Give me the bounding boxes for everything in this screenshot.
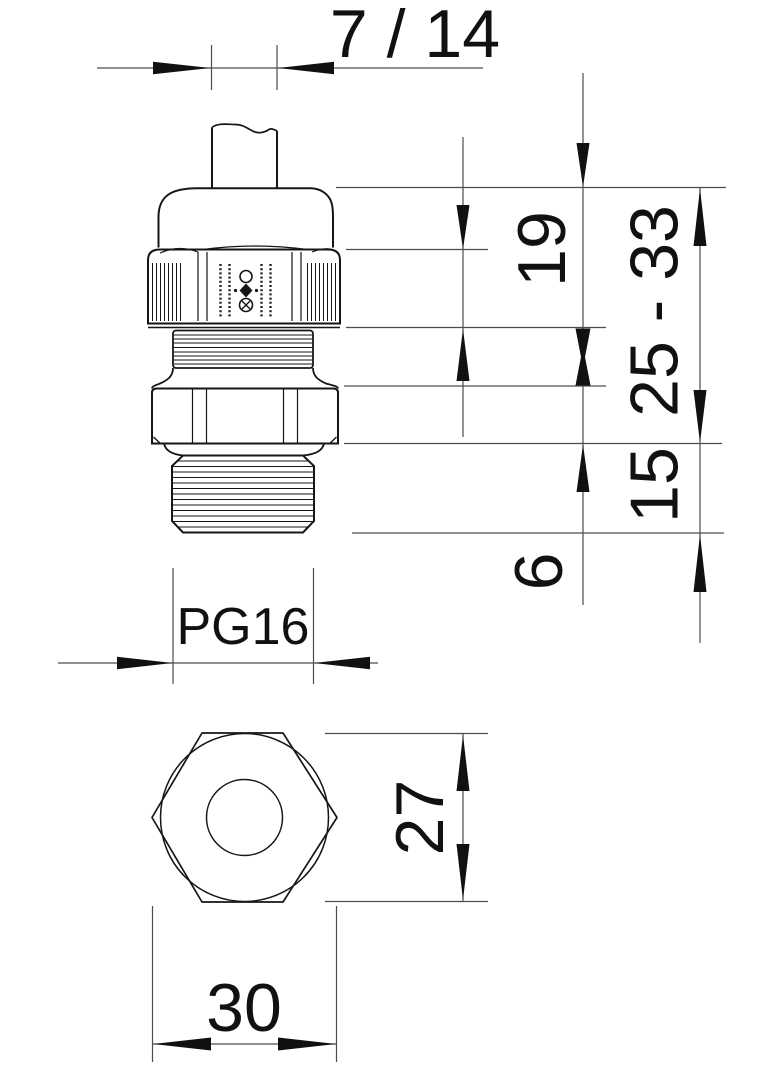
dim-label-15: 15 xyxy=(617,447,693,523)
dim-label-27: 27 xyxy=(382,780,458,856)
brand-logo-icon xyxy=(234,271,258,312)
dome-cap xyxy=(159,188,334,247)
flange-chamfer-ticks xyxy=(154,437,337,443)
dim-label-30: 30 xyxy=(206,970,282,1046)
technical-drawing-page: 7 / 14 19 25 - 33 15 6 PG16 27 30 xyxy=(0,0,784,1066)
thread xyxy=(172,456,314,533)
knurled-nut xyxy=(148,246,340,328)
cable xyxy=(212,124,277,188)
dim-label-25-33: 25 - 33 xyxy=(617,205,693,417)
bottom-view xyxy=(152,733,337,902)
hourglass-arrow xyxy=(576,329,591,386)
cable-gland-drawing: 7 / 14 19 25 - 33 15 6 PG16 27 30 xyxy=(0,0,784,1066)
outer-circle xyxy=(161,734,329,902)
knurling-right xyxy=(308,263,336,321)
side-view xyxy=(148,124,340,532)
dim-label-6: 6 xyxy=(501,553,577,591)
hex-flange xyxy=(152,389,338,444)
knurling-left xyxy=(153,263,181,321)
neck-transition-lower xyxy=(164,444,324,456)
ribbed-section xyxy=(173,331,313,369)
cable-break-edge xyxy=(212,124,277,133)
dimension-lines xyxy=(58,45,726,1062)
dimension-labels: 7 / 14 19 25 - 33 15 6 PG16 27 30 xyxy=(177,0,693,1046)
dim-label-thread-size: PG16 xyxy=(177,598,310,656)
dim-label-cable-diameter: 7 / 14 xyxy=(330,0,500,72)
bore-circle xyxy=(207,780,283,856)
hexagon-outline xyxy=(152,733,337,902)
neck-transition-upper xyxy=(152,368,338,389)
dim-label-19: 19 xyxy=(504,211,580,287)
